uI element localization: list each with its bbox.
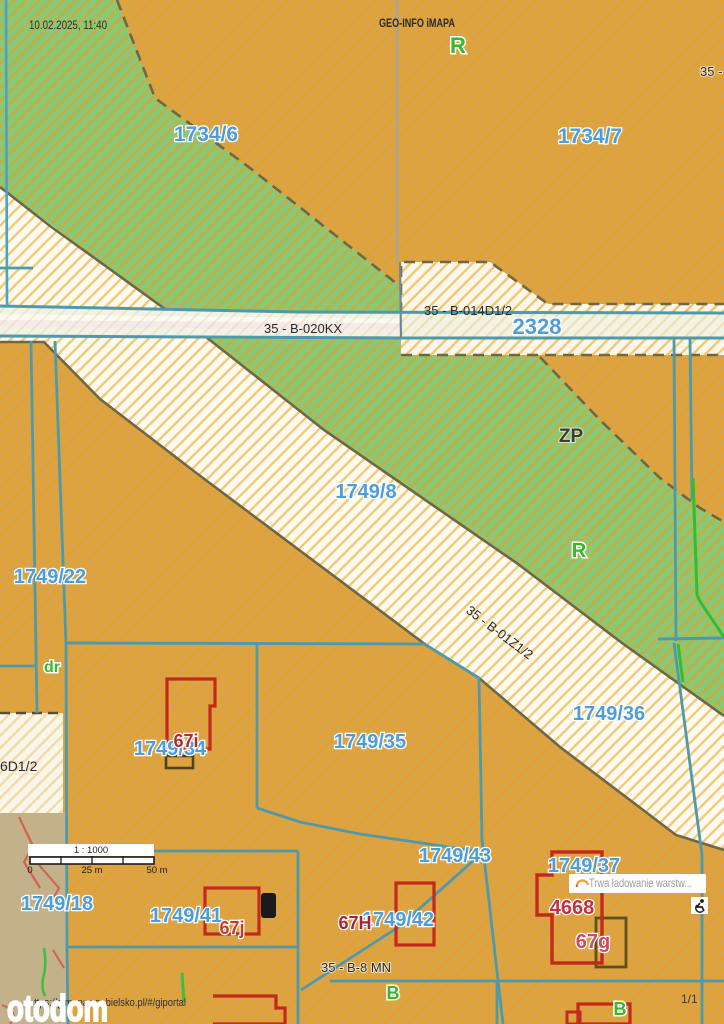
svg-text:1734/7: 1734/7 bbox=[558, 125, 622, 148]
svg-text:1734/6: 1734/6 bbox=[174, 123, 238, 146]
svg-text:35 - B-014D1/2: 35 - B-014D1/2 bbox=[424, 303, 512, 318]
svg-text:otodom: otodom bbox=[7, 988, 108, 1024]
svg-text:1749/35: 1749/35 bbox=[334, 731, 406, 753]
svg-text:10.02.2025, 11:40: 10.02.2025, 11:40 bbox=[29, 18, 107, 32]
svg-text:50 m: 50 m bbox=[146, 865, 167, 876]
svg-text:R: R bbox=[572, 540, 587, 562]
svg-text:35 - B-8 MN: 35 - B-8 MN bbox=[321, 960, 391, 975]
svg-text:35 - B-020KX: 35 - B-020KX bbox=[264, 321, 342, 336]
svg-text:35 - B: 35 - B bbox=[700, 64, 724, 79]
svg-text:67g: 67g bbox=[576, 931, 610, 953]
svg-text:6D1/2: 6D1/2 bbox=[0, 758, 38, 774]
svg-text:1/1: 1/1 bbox=[681, 992, 698, 1006]
svg-text:4668: 4668 bbox=[550, 897, 595, 919]
svg-text:1749/8: 1749/8 bbox=[335, 481, 396, 503]
svg-text:1749/22: 1749/22 bbox=[14, 566, 86, 588]
svg-text:25 m: 25 m bbox=[81, 865, 102, 876]
svg-text:67j: 67j bbox=[219, 918, 244, 938]
svg-text:1 : 1000: 1 : 1000 bbox=[74, 845, 108, 856]
svg-text:2328: 2328 bbox=[513, 314, 562, 339]
svg-text:1749/37: 1749/37 bbox=[548, 855, 620, 877]
svg-text:67H: 67H bbox=[338, 913, 371, 933]
svg-text:1749/41: 1749/41 bbox=[150, 905, 222, 927]
svg-text:1749/42: 1749/42 bbox=[362, 909, 434, 931]
svg-text:0: 0 bbox=[27, 865, 32, 876]
svg-text:1749/43: 1749/43 bbox=[419, 845, 491, 867]
svg-text:GEO-INFO iMAPA: GEO-INFO iMAPA bbox=[379, 16, 455, 30]
svg-text:1749/18: 1749/18 bbox=[21, 893, 93, 915]
svg-text:1749/36: 1749/36 bbox=[573, 703, 645, 725]
svg-text:R: R bbox=[450, 33, 466, 58]
svg-text:B: B bbox=[387, 983, 400, 1003]
svg-text:B: B bbox=[614, 999, 627, 1019]
svg-text:Trwa ładowanie warstw...: Trwa ładowanie warstw... bbox=[589, 876, 692, 890]
svg-text:ZP: ZP bbox=[559, 426, 584, 447]
svg-text:67i: 67i bbox=[173, 731, 198, 751]
svg-text:dr: dr bbox=[44, 659, 60, 676]
